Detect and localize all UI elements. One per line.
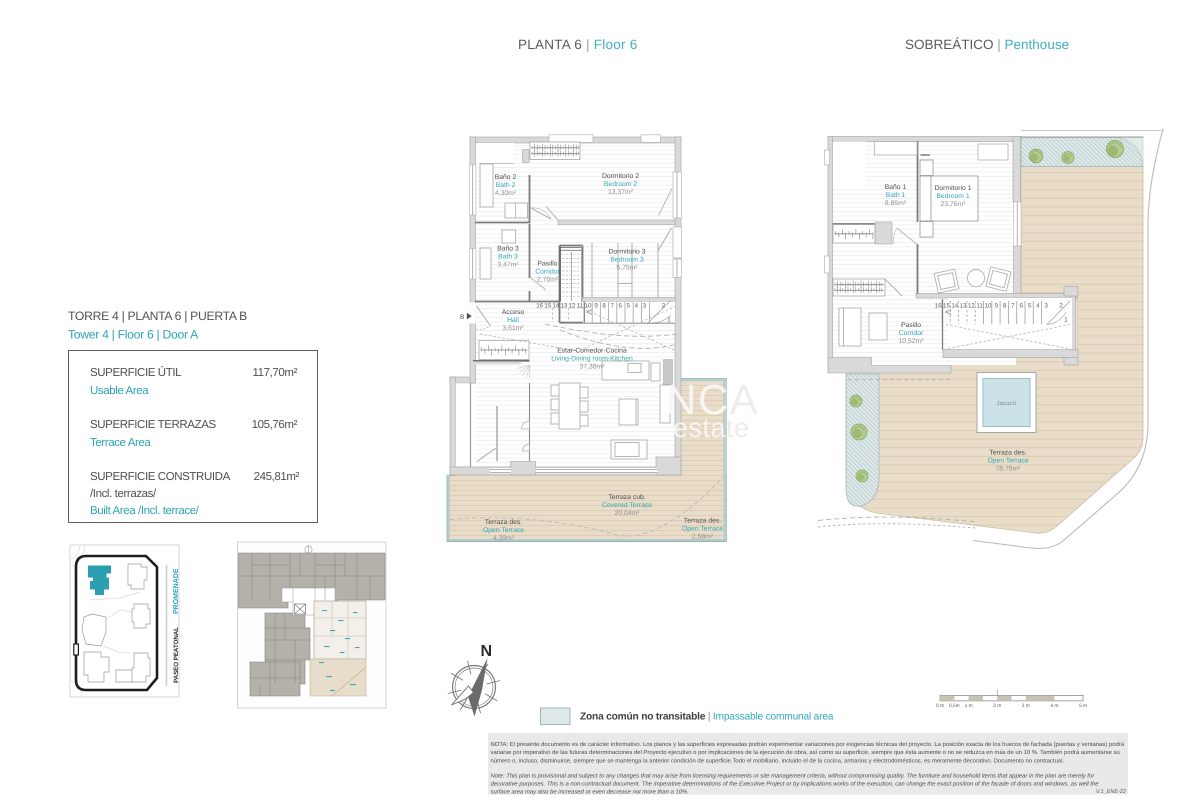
svg-text:78,75m²: 78,75m² — [996, 466, 1022, 473]
svg-text:10: 10 — [985, 302, 992, 309]
svg-text:Pasillo: Pasillo — [901, 322, 921, 329]
svg-text:3,47m²: 3,47m² — [497, 262, 519, 269]
svg-text:13,37m²: 13,37m² — [608, 189, 634, 196]
svg-text:PASEO PEATONAL: PASEO PEATONAL — [173, 627, 180, 683]
svg-text:15: 15 — [943, 302, 950, 309]
svg-text:9: 9 — [594, 303, 598, 310]
svg-text:0 m: 0 m — [936, 703, 944, 709]
svg-text:Zona común no transitable | Im: Zona común no transitable | Impassable c… — [580, 712, 834, 723]
svg-text:20,04m²: 20,04m² — [615, 510, 641, 517]
svg-text:3: 3 — [643, 303, 647, 310]
svg-text:8: 8 — [602, 303, 606, 310]
svg-text:11: 11 — [976, 302, 983, 309]
svg-text:V.1_ENE-22: V.1_ENE-22 — [1096, 789, 1126, 795]
svg-text:Pasillo: Pasillo — [537, 261, 557, 268]
svg-text:12: 12 — [968, 302, 975, 309]
svg-text:Terraza des.: Terraza des. — [684, 518, 722, 525]
svg-text:2: 2 — [1059, 302, 1063, 309]
svg-text:NOTA: El presente documento e: NOTA: El presente documento es de caráct… — [491, 741, 1125, 748]
svg-text:Terraza des.: Terraza des. — [989, 450, 1027, 457]
svg-text:Terrace Area: Terrace Area — [90, 437, 151, 449]
svg-text:Covered Terrace: Covered Terrace — [602, 502, 652, 509]
svg-text:8,85m²: 8,85m² — [885, 200, 907, 207]
svg-text:TORRE 4 | PLANTA 6 | PUERTA B: TORRE 4 | PLANTA 6 | PUERTA B — [68, 309, 247, 323]
svg-text:Tower 4 | Floor 6 | Door A: Tower 4 | Floor 6 | Door A — [68, 328, 199, 342]
svg-text:Built Area /Incl. terrace/: Built Area /Incl. terrace/ — [90, 505, 200, 517]
svg-text:23,76m²: 23,76m² — [941, 201, 967, 208]
svg-text:Bath 3: Bath 3 — [498, 254, 518, 261]
svg-text:8: 8 — [1003, 302, 1007, 309]
svg-text:Jacuzzi: Jacuzzi — [996, 400, 1016, 407]
svg-text:Note: This plan is provisional: Note: This plan is provisional and subje… — [491, 772, 1096, 779]
svg-text:105,76m²: 105,76m² — [252, 419, 298, 431]
svg-text:3,61m²: 3,61m² — [502, 325, 524, 332]
svg-text:Terraza des.: Terraza des. — [485, 519, 523, 526]
svg-text:1 m: 1 m — [965, 703, 973, 709]
svg-text:9: 9 — [995, 302, 999, 309]
svg-text:16: 16 — [935, 302, 942, 309]
svg-text:Bath 1: Bath 1 — [886, 192, 906, 199]
svg-text:2 m: 2 m — [993, 703, 1001, 709]
svg-text:4: 4 — [635, 303, 639, 310]
svg-text:117,70m²: 117,70m² — [252, 367, 297, 379]
svg-text:Baño 2: Baño 2 — [495, 174, 517, 181]
svg-text:15: 15 — [544, 303, 551, 310]
svg-text:4 m: 4 m — [1050, 703, 1058, 709]
svg-text:6: 6 — [618, 303, 622, 310]
svg-text:Usable Area: Usable Area — [90, 385, 149, 397]
svg-text:Dormitorio 3: Dormitorio 3 — [608, 249, 645, 256]
svg-text:Hall: Hall — [507, 317, 519, 324]
svg-text:Bedroom 1: Bedroom 1 — [936, 193, 969, 200]
svg-text:Corridor: Corridor — [899, 330, 924, 337]
svg-text:16: 16 — [536, 303, 543, 310]
svg-text:SOBREÁTICO | Penthouse: SOBREÁTICO | Penthouse — [905, 37, 1069, 52]
svg-text:Living-Dining room-Kitchen: Living-Dining room-Kitchen — [551, 356, 633, 363]
svg-text:Open Terrace: Open Terrace — [987, 458, 1028, 465]
svg-text:2,70m²: 2,70m² — [537, 277, 559, 284]
svg-text:decorative purposes. This is a: decorative purposes. This is a non-contr… — [491, 781, 1100, 788]
svg-text:6: 6 — [1019, 302, 1023, 309]
svg-text:PROMENADE: PROMENADE — [173, 568, 180, 614]
svg-text:B: B — [460, 314, 464, 321]
svg-text:5,75m²: 5,75m² — [616, 265, 638, 272]
svg-text:37,38m²: 37,38m² — [580, 364, 606, 371]
svg-text:surface area may also be incre: surface area may also be increased or ev… — [491, 789, 689, 796]
svg-text:Bath 2: Bath 2 — [496, 182, 516, 189]
svg-text:Baño 1: Baño 1 — [885, 184, 907, 191]
svg-text:Open Terrace: Open Terrace — [483, 527, 524, 534]
svg-text:14: 14 — [552, 303, 559, 310]
svg-text:13: 13 — [560, 303, 567, 310]
svg-text:Open Terrace: Open Terrace — [682, 526, 723, 533]
svg-text:3 m: 3 m — [1022, 703, 1030, 709]
svg-text:7: 7 — [1011, 302, 1015, 309]
svg-text:14: 14 — [951, 302, 958, 309]
svg-text:Dormitorio 2: Dormitorio 2 — [602, 173, 639, 180]
svg-text:Dormitorio 1: Dormitorio 1 — [934, 185, 971, 192]
svg-text:variarse por imperativo de las: variarse por imperativo de las futuras d… — [491, 749, 1120, 756]
svg-text:0,5m: 0,5m — [949, 703, 960, 709]
svg-text:SUPERFICIE TERRAZAS: SUPERFICIE TERRAZAS — [90, 419, 216, 431]
svg-text:Baño 3: Baño 3 — [497, 246, 519, 253]
svg-text:10,52m²: 10,52m² — [899, 338, 925, 345]
svg-text:5: 5 — [626, 303, 630, 310]
svg-text:245,81m²: 245,81m² — [254, 471, 300, 483]
svg-text:4: 4 — [1036, 302, 1040, 309]
svg-text:4,30m²: 4,30m² — [495, 190, 517, 197]
svg-text:número o, incluso, disminuirse: número o, incluso, disminuirse, siempre … — [491, 757, 1065, 764]
svg-text:N: N — [481, 643, 493, 660]
svg-text:10: 10 — [585, 303, 592, 310]
svg-text:/Incl. terrazas/: /Incl. terrazas/ — [90, 488, 157, 500]
svg-text:5: 5 — [1028, 302, 1032, 309]
svg-text:7: 7 — [610, 303, 614, 310]
svg-text:Corridor: Corridor — [535, 269, 560, 276]
svg-text:1: 1 — [1064, 317, 1068, 324]
svg-text:SUPERFICIE CONSTRUIDA: SUPERFICIE CONSTRUIDA — [90, 471, 231, 483]
svg-text:Bedroom 3: Bedroom 3 — [610, 257, 643, 264]
svg-text:Estar-Comedor-Cocina: Estar-Comedor-Cocina — [557, 348, 627, 355]
svg-text:Acceso: Acceso — [502, 309, 525, 316]
svg-text:Terraza cub.: Terraza cub. — [608, 494, 646, 501]
svg-text:4,39m²: 4,39m² — [493, 535, 515, 542]
svg-text:2,58m²: 2,58m² — [692, 534, 714, 541]
svg-text:13: 13 — [960, 302, 967, 309]
svg-text:3: 3 — [1044, 302, 1048, 309]
svg-text:Bedroom 2: Bedroom 2 — [604, 181, 637, 188]
svg-text:SUPERFICIE ÚTIL: SUPERFICIE ÚTIL — [90, 366, 182, 379]
svg-text:5 m: 5 m — [1079, 703, 1087, 709]
svg-text:12: 12 — [568, 303, 575, 310]
svg-text:PLANTA 6 | Floor 6: PLANTA 6 | Floor 6 — [518, 37, 638, 52]
